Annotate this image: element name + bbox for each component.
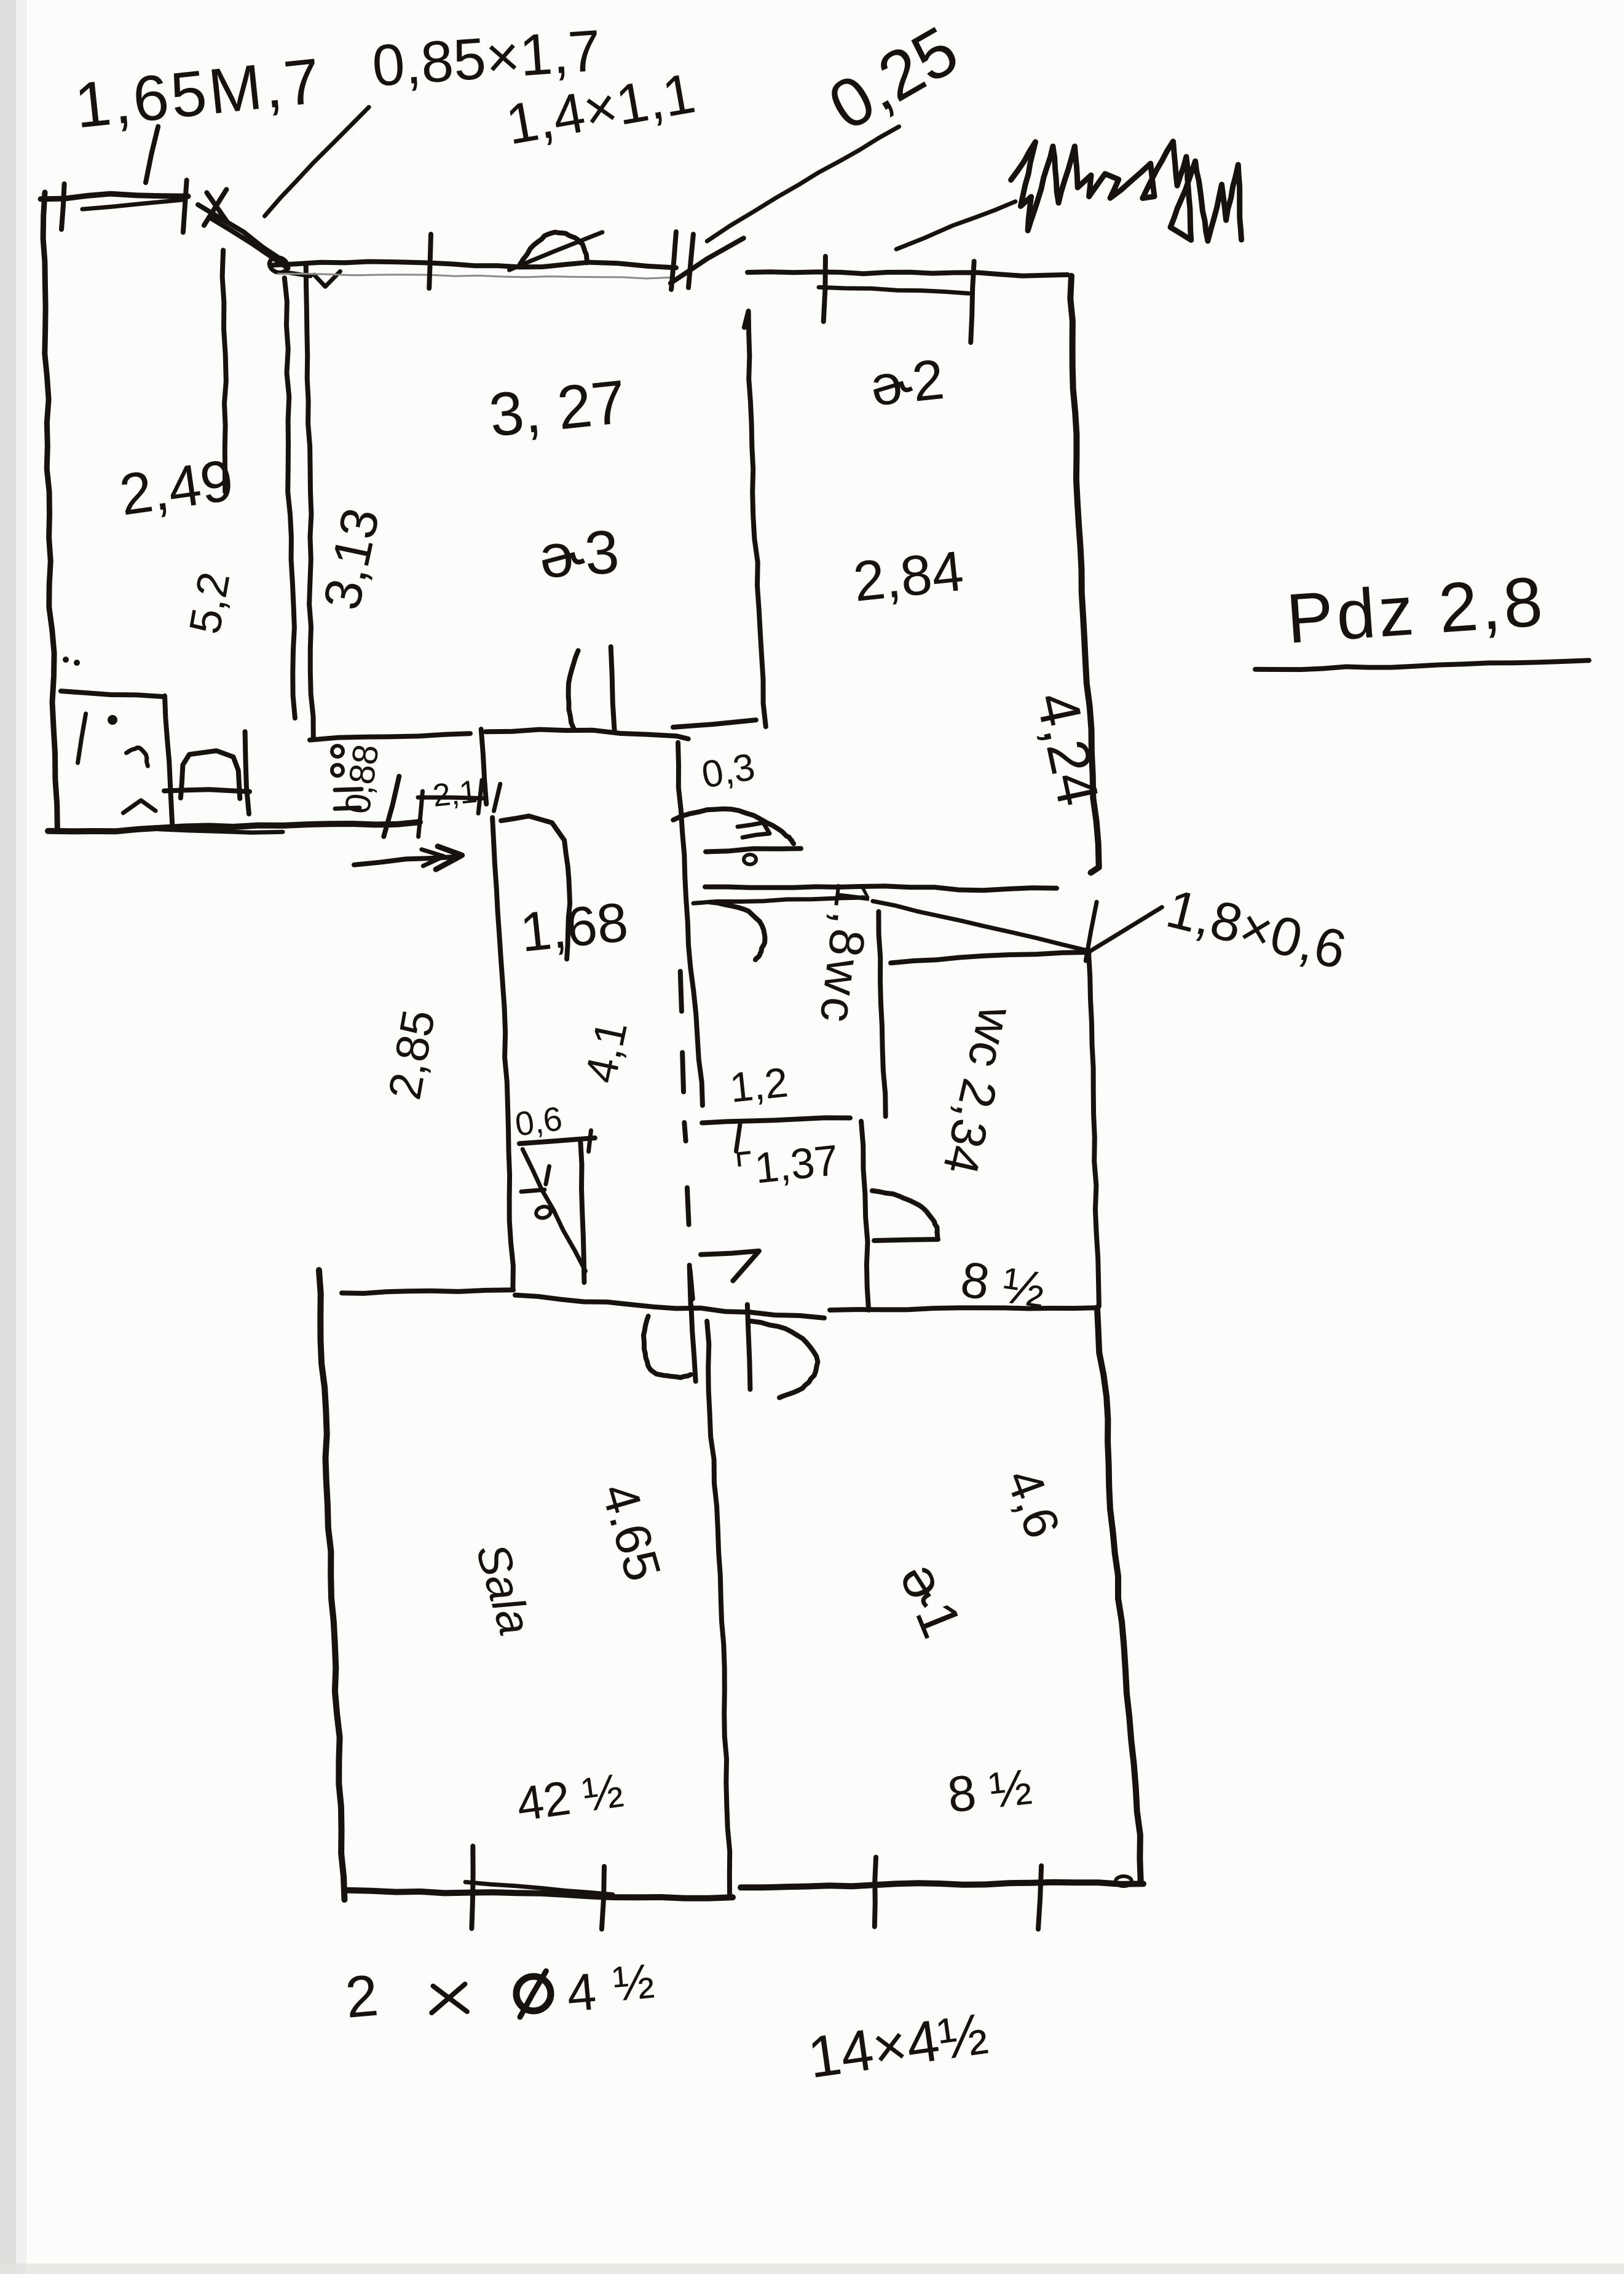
svg-text:0,3: 0,3 [698,746,758,797]
svg-text:8 ½: 8 ½ [957,1252,1048,1319]
svg-text:3, 27: 3, 27 [486,367,629,450]
svg-text:2,1: 2,1 [431,774,479,814]
svg-text:½: ½ [611,1953,656,2011]
svg-text:0,6: 0,6 [513,1099,564,1143]
svg-text:2,84: 2,84 [850,540,966,614]
svg-text:5,2: 5,2 [180,569,239,638]
svg-text:2: 2 [343,1963,381,2031]
svg-text:8 ½: 8 ½ [945,1759,1035,1823]
svg-text:4: 4 [564,1962,598,2023]
svg-text:1,68: 1,68 [518,891,631,964]
svg-text:1,2: 1,2 [728,1059,790,1111]
svg-text:ɚ2: ɚ2 [867,348,947,418]
svg-text:ɚ3: ɚ3 [537,517,621,591]
